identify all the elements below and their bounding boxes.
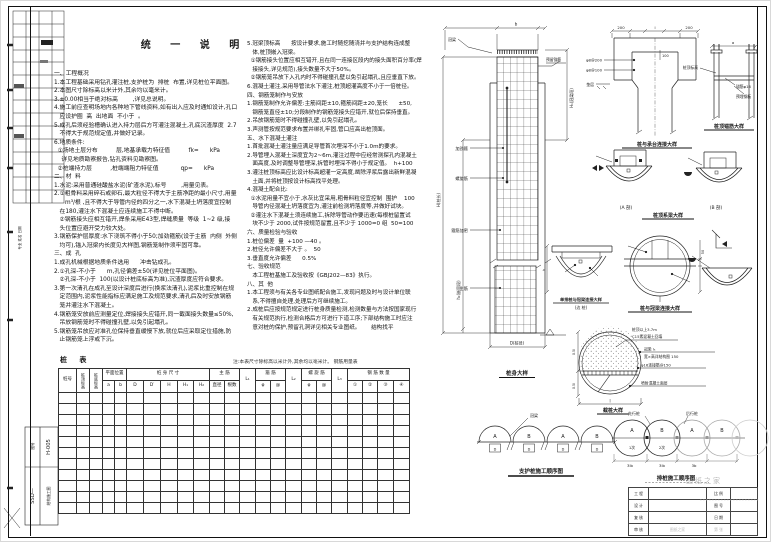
note-line: 八、其 他 bbox=[247, 281, 445, 290]
pile-table-cell bbox=[59, 503, 77, 514]
pile-table-cell bbox=[77, 481, 90, 492]
pile-table-cell bbox=[90, 415, 103, 426]
pile-table-cell bbox=[210, 393, 225, 404]
pile-table-cell bbox=[240, 448, 256, 459]
pile-table-cell bbox=[59, 448, 77, 459]
pile-table-cell bbox=[127, 459, 144, 470]
pile-table-cell bbox=[317, 492, 332, 503]
pile-table-empty-row bbox=[59, 426, 410, 437]
note-line: 4.施工前应查明场地内各种地下管线资料,如有出入应及时通知设计,孔口 bbox=[54, 104, 268, 113]
note-line: 七、验收规范 bbox=[247, 263, 445, 272]
pile-table-empty-row bbox=[59, 437, 410, 448]
pile-table-cell bbox=[103, 470, 115, 481]
col-bar1: ① bbox=[348, 381, 363, 393]
pile-table-cell bbox=[90, 404, 103, 415]
pile-table-cell bbox=[161, 470, 178, 481]
pile-table-cell bbox=[194, 503, 210, 514]
pile-table-cell bbox=[348, 448, 363, 459]
pile-table-cell bbox=[225, 415, 240, 426]
pile-table-cell bbox=[302, 492, 317, 503]
pile-table-cell bbox=[302, 459, 317, 470]
col-L2: L₂ bbox=[286, 369, 302, 393]
pile-table-cell bbox=[302, 426, 317, 437]
note-line: 六、质量检验与验收 bbox=[247, 229, 445, 238]
drawing-sheet: 统 一 说 明 一、工程概况1.本工程基础采用钻孔灌注桩,支护桩为 排桩 布置,… bbox=[0, 0, 771, 542]
pile-table-cell bbox=[240, 437, 256, 448]
col-H: H bbox=[161, 381, 178, 393]
pile-table: 桩号 桩顶标高 桩底标高 平面位置 桩 身 尺 寸 主 筋 L₁ 箍 筋 L₂ … bbox=[58, 368, 409, 514]
note-line: 四、钢筋笼制作与安放 bbox=[247, 92, 445, 101]
pile-table-cell bbox=[394, 492, 410, 503]
pile-table-cell bbox=[90, 393, 103, 404]
pile-table-cell bbox=[286, 481, 302, 492]
pile-table-cell bbox=[240, 404, 256, 415]
pile-table-cell bbox=[178, 492, 194, 503]
pile-table-cell bbox=[332, 426, 348, 437]
pile-table-cell bbox=[378, 459, 394, 470]
pile-table-cell bbox=[103, 492, 115, 503]
pile-table-cell bbox=[144, 481, 161, 492]
tb-approve-label: 审 核 bbox=[629, 524, 649, 536]
note-line: 4.钢筋笼安放前应测量定位,焊接接头应错开,同一截面接头数量≤50%, bbox=[54, 311, 268, 320]
note-line: 1.桩位偏差 量 +100 —40 。 bbox=[247, 238, 445, 247]
pile-table-cell bbox=[271, 426, 286, 437]
pile-table-cell bbox=[256, 437, 271, 448]
note-line: 笼并灌注水下混凝土。 bbox=[54, 302, 268, 311]
note-line: 2.成桩后应按规范规定进行桩身质量检测,检测数量与方法按国家现行 bbox=[247, 306, 445, 315]
pile-table-cell bbox=[194, 481, 210, 492]
tb-sheetno-value bbox=[731, 524, 758, 536]
pile-table-cell bbox=[127, 404, 144, 415]
note-line: 在180,灌注水下混凝土应连续施工不得中断。 bbox=[54, 208, 268, 217]
pile-table-cell bbox=[256, 492, 271, 503]
tb-watermark-cell: 图纸之家 bbox=[649, 524, 707, 536]
pile-table-cell bbox=[194, 470, 210, 481]
pile-table-cell bbox=[378, 404, 394, 415]
pile-table-cell bbox=[256, 404, 271, 415]
note-line: 3.垂直度允许偏差 0.5% bbox=[247, 255, 445, 264]
pile-table-cell bbox=[286, 492, 302, 503]
pile-table-cell bbox=[317, 459, 332, 470]
pile-table-note: 注:本表尺寸除标高以米计外,其余均以毫米计。 钢筋用量表 bbox=[233, 358, 358, 365]
pile-table-cell bbox=[127, 492, 144, 503]
note-line: 三、成 孔 bbox=[54, 250, 268, 259]
note-line: 2.吊放钢筋笼时不得碰撞孔壁,以免引起塌孔。 bbox=[247, 117, 445, 126]
col-spiral-dia: φ bbox=[302, 381, 317, 393]
pile-table-cell bbox=[194, 459, 210, 470]
pile-table-cell bbox=[77, 459, 90, 470]
note-line: 1.成孔机械根据地质条件选用 冲击钻成孔。 bbox=[54, 259, 268, 268]
note-line: 3.第一次清孔在成孔至设计深度后进行(换浆法清孔),泥浆比重控制在规 bbox=[54, 285, 268, 294]
col-spiral-spacing: @ bbox=[317, 381, 332, 393]
pile-table-cell bbox=[394, 437, 410, 448]
pile-table-cell bbox=[90, 448, 103, 459]
pile-table-cell bbox=[210, 503, 225, 514]
pile-table-cell bbox=[256, 415, 271, 426]
pile-table-cell bbox=[394, 426, 410, 437]
pile-table-cell bbox=[115, 492, 127, 503]
pile-table-cell bbox=[363, 415, 378, 426]
pile-table-cell bbox=[144, 415, 161, 426]
pile-table-cell bbox=[363, 470, 378, 481]
group-bar-quantity: 钢 筋 数 量 bbox=[348, 369, 410, 381]
note-line: 头位置应避开受力较大处。 bbox=[54, 225, 268, 234]
pile-table-cell bbox=[127, 503, 144, 514]
pile-table-cell bbox=[378, 393, 394, 404]
pile-table-cell bbox=[210, 437, 225, 448]
pile-table-header-row2: a b D D′ H H₁ H₂ 直径 根数 φ @ φ @ ① ② ③ ④ bbox=[59, 381, 410, 393]
pile-table-cell bbox=[77, 448, 90, 459]
pile-table-cell bbox=[332, 492, 348, 503]
note-line: ②钢筋接头应相互错开,焊条采用E43型,焊缝质量 等级 1~2 级,接 bbox=[54, 216, 268, 225]
pile-table-empty-row bbox=[59, 470, 410, 481]
pile-table-cell bbox=[161, 492, 178, 503]
note-line: 吊放钢筋笼时不得碰撞孔壁,以免引起塌孔。 bbox=[54, 319, 268, 328]
pile-table-cell bbox=[378, 415, 394, 426]
pile-table-cell bbox=[271, 459, 286, 470]
pile-table-title: 桩 表 bbox=[60, 355, 91, 365]
pile-table-cell bbox=[348, 437, 363, 448]
pile-table-cell bbox=[256, 426, 271, 437]
pile-table-cell bbox=[286, 426, 302, 437]
pile-table-cell bbox=[317, 404, 332, 415]
pile-table-cell bbox=[302, 470, 317, 481]
pile-table-cell bbox=[161, 437, 178, 448]
pile-table-cell bbox=[225, 393, 240, 404]
frame-right-inner-line bbox=[757, 6, 758, 536]
tb-drawno-label: 图 号 bbox=[707, 500, 731, 512]
col-bar4: ④ bbox=[394, 381, 410, 393]
group-spiral-bars: 螺 旋 筋 bbox=[302, 369, 332, 381]
pile-table-cell bbox=[210, 426, 225, 437]
pile-table-cell bbox=[178, 448, 194, 459]
pile-table-empty-row bbox=[59, 393, 410, 404]
note-line: 2.本图尺寸除标高以米计外,其余均以毫米计。 bbox=[54, 87, 268, 96]
pile-table-cell bbox=[77, 492, 90, 503]
pile-table-cell bbox=[317, 437, 332, 448]
note-line: 6.地质条件: bbox=[54, 139, 268, 148]
note-line: 详见地质勘察报告,钻孔资料见勘察图。 bbox=[54, 156, 268, 165]
pile-table-cell bbox=[194, 448, 210, 459]
pile-table-empty-row bbox=[59, 503, 410, 514]
pile-table-cell bbox=[225, 448, 240, 459]
pile-table-cell bbox=[194, 437, 210, 448]
pile-table-cell bbox=[90, 492, 103, 503]
note-line: 定范围内,泥浆性能指标应满足施工及规范要求,清孔后及时安放钢筋 bbox=[54, 293, 268, 302]
pile-table-cell bbox=[77, 470, 90, 481]
pile-table-cell bbox=[144, 448, 161, 459]
tb-date-label: 日 期 bbox=[707, 512, 731, 524]
pile-table-cell bbox=[103, 481, 115, 492]
pile-table-cell bbox=[348, 481, 363, 492]
col-bar2: ② bbox=[363, 381, 378, 393]
note-line: ②桩端持力层 ,桩端端阻力特征值 qp= kPa bbox=[54, 165, 268, 174]
pile-table-cell bbox=[256, 448, 271, 459]
pile-table-cell bbox=[378, 481, 394, 492]
note-line: 3.灌注桩顶标高应比设计标高超灌一定高度,凿除浮浆后露出新鲜混凝 bbox=[247, 169, 445, 178]
pile-table-cell bbox=[194, 492, 210, 503]
pile-table-cell bbox=[286, 404, 302, 415]
note-line: 2.桩径允许偏差不大于 。 50 bbox=[247, 246, 445, 255]
pile-table-cell bbox=[332, 404, 348, 415]
pile-table-cell bbox=[271, 393, 286, 404]
pile-table-cell bbox=[394, 404, 410, 415]
pile-table-cell bbox=[348, 415, 363, 426]
frame-left-inner-line bbox=[30, 6, 31, 536]
note-line: 有关规范执行,检测合格后方可进行下道工序;下部结构施工时应注 bbox=[247, 315, 445, 324]
pile-table-cell bbox=[302, 448, 317, 459]
note-line: 意对桩的保护,预留孔洞详见相关专业图纸。 结构找平 bbox=[247, 324, 445, 333]
note-line: 止钢筋笼上浮或下沉。 bbox=[54, 336, 268, 345]
col-D: D bbox=[127, 381, 144, 393]
note-line: 五、水下混凝土灌注 bbox=[247, 135, 445, 144]
pile-table-cell bbox=[210, 481, 225, 492]
note-line: 土面,并将桩顶按设计标高找平处理。 bbox=[247, 178, 445, 187]
pile-table-cell bbox=[394, 503, 410, 514]
pile-table-cell bbox=[161, 415, 178, 426]
pile-table-cell bbox=[144, 459, 161, 470]
pile-table-cell bbox=[90, 437, 103, 448]
pile-table-cell bbox=[240, 503, 256, 514]
pile-table-cell bbox=[302, 404, 317, 415]
pile-table-cell bbox=[363, 448, 378, 459]
pile-table-cell bbox=[332, 448, 348, 459]
pile-table-cell bbox=[225, 503, 240, 514]
pile-table-cell bbox=[77, 503, 90, 514]
pile-table-cell bbox=[144, 404, 161, 415]
note-line: 3.声测管按规范要求布置并绑扎牢固,管口应高出桩顶面。 bbox=[247, 126, 445, 135]
note-line: 1.本工程须与有关各专业图纸配合施工,发现问题及时与设计单位联 bbox=[247, 289, 445, 298]
pile-table-cell bbox=[286, 415, 302, 426]
pile-table-cell bbox=[302, 393, 317, 404]
pile-table-cell bbox=[161, 426, 178, 437]
pile-table-cell bbox=[302, 481, 317, 492]
note-line: 钢筋笼直径±10;分段制作的钢筋笼接头应错开,就位后保持垂直。 bbox=[247, 109, 445, 118]
pile-table-empty-row bbox=[59, 481, 410, 492]
note-line: 5.钢筋笼吊放应对准孔位保持垂直缓慢下放,就位后应采取定位措施,防 bbox=[54, 328, 268, 337]
pile-table-cell bbox=[115, 426, 127, 437]
tb-check-label: 复 核 bbox=[629, 512, 649, 524]
pile-table-cell bbox=[127, 393, 144, 404]
note-line: 1.本工程基础采用钻孔灌注桩,支护桩为 排桩 布置,详见桩位平面图。 bbox=[54, 79, 268, 88]
pile-table-cell bbox=[161, 481, 178, 492]
pile-table-cell bbox=[59, 437, 77, 448]
group-main-bars: 主 筋 bbox=[210, 369, 240, 381]
note-line: 导管内径混凝土坍落度宜为,灌注前检测坍落度等,并做好试块。 bbox=[247, 203, 445, 212]
pile-table-cell bbox=[77, 404, 90, 415]
pile-table-cell bbox=[240, 470, 256, 481]
pile-table-cell bbox=[378, 426, 394, 437]
tb-scale-value bbox=[731, 488, 758, 500]
pile-table-cell bbox=[332, 481, 348, 492]
note-line: ①钢筋接头位置应相互错开,且在同一连接区段内的接头面积百分率(焊 bbox=[247, 57, 445, 66]
pile-table-cell bbox=[194, 404, 210, 415]
pile-table-cell bbox=[348, 426, 363, 437]
pile-table-cell bbox=[378, 492, 394, 503]
pile-table-cell bbox=[394, 481, 410, 492]
col-bar3: ③ bbox=[378, 381, 394, 393]
pile-table-cell bbox=[394, 415, 410, 426]
pile-table-cell bbox=[178, 470, 194, 481]
pile-table-cell bbox=[271, 404, 286, 415]
pile-table-cell bbox=[77, 415, 90, 426]
col-stirrup-dia: φ bbox=[256, 381, 271, 393]
pile-table-cell bbox=[302, 503, 317, 514]
pile-table-cell bbox=[240, 492, 256, 503]
note-line: ②孔深-不小于 100(以设计桩底标高为准),沉渣厚度应符合要求。 bbox=[54, 276, 268, 285]
col-H2: H₂ bbox=[194, 381, 210, 393]
pile-table-cell bbox=[77, 393, 90, 404]
pile-table-cell bbox=[363, 503, 378, 514]
pile-table-cell bbox=[115, 503, 127, 514]
pile-table-cell bbox=[144, 503, 161, 514]
pile-table-empty-row bbox=[59, 415, 410, 426]
pile-table-cell bbox=[144, 426, 161, 437]
pile-table-cell bbox=[127, 481, 144, 492]
pile-table-cell bbox=[317, 448, 332, 459]
pile-table-cell bbox=[317, 393, 332, 404]
pile-table-cell bbox=[178, 426, 194, 437]
pile-table-cell bbox=[225, 437, 240, 448]
pile-table-cell bbox=[256, 481, 271, 492]
pile-table-cell bbox=[210, 415, 225, 426]
pile-table-empty-row bbox=[59, 448, 410, 459]
pile-table-cell bbox=[161, 503, 178, 514]
pile-table-header-row1: 桩号 桩顶标高 桩底标高 平面位置 桩 身 尺 寸 主 筋 L₁ 箍 筋 L₂ … bbox=[59, 369, 410, 381]
note-line: 均可),锚入冠梁内长度见大样图,钢筋笼制作须牢固可靠。 bbox=[54, 242, 268, 251]
pile-table-cell bbox=[317, 481, 332, 492]
pile-table-cell bbox=[127, 437, 144, 448]
pile-table-cell bbox=[225, 404, 240, 415]
note-line: 体,桩顶嵌入冠梁。 bbox=[247, 49, 445, 58]
note-line: 1.水泥:采用普通硅酸盐水泥(矿渣水泥),标号 ,用量见表。 bbox=[54, 182, 268, 191]
pile-table-cell bbox=[363, 437, 378, 448]
pile-table-cell bbox=[240, 481, 256, 492]
general-notes-right-column: 5.冠梁顶标高 按设计要求,施工时随挖随浇并与支护结构连成整 体,桩顶嵌入冠梁。… bbox=[247, 40, 445, 340]
col-H1: H₁ bbox=[178, 381, 194, 393]
pile-table-cell bbox=[332, 459, 348, 470]
pile-table-cell bbox=[332, 503, 348, 514]
pile-table-cell bbox=[394, 448, 410, 459]
pile-table-cell bbox=[225, 481, 240, 492]
pile-table-cell bbox=[194, 426, 210, 437]
pile-table-cell bbox=[302, 437, 317, 448]
pile-table-cell bbox=[378, 437, 394, 448]
note-line: 1.钢筋笼制作允许偏差:主筋间距±10,箍筋间距±20,笼长 ±50, bbox=[247, 100, 445, 109]
pile-table-cell bbox=[225, 459, 240, 470]
tb-scale-label: 比 例 bbox=[707, 488, 731, 500]
note-line: 接接头,详见规范),接头数量不大于50%。 bbox=[247, 66, 445, 75]
note-line: 4.混凝土配合比: bbox=[247, 186, 445, 195]
pile-table-cell bbox=[103, 459, 115, 470]
pile-table-cell bbox=[59, 459, 77, 470]
pile-table-cell bbox=[103, 404, 115, 415]
tb-sheetno-label: 第 张 bbox=[707, 524, 731, 536]
pile-table-cell bbox=[286, 393, 302, 404]
pile-table-cell bbox=[363, 393, 378, 404]
tb-check-value bbox=[649, 512, 707, 524]
pile-table-cell bbox=[103, 503, 115, 514]
pile-table-cell bbox=[286, 448, 302, 459]
note-line: 应设护圈 高 出地面 不小于 。 bbox=[54, 113, 268, 122]
col-pile-no: 桩号 bbox=[59, 369, 77, 393]
pile-table-cell bbox=[378, 503, 394, 514]
col-diameter: 直径 bbox=[210, 381, 225, 393]
group-pile-dimensions: 桩 身 尺 寸 bbox=[127, 369, 210, 381]
pile-table-cell bbox=[115, 459, 127, 470]
tb-design-value bbox=[649, 500, 707, 512]
pile-table-cell bbox=[127, 415, 144, 426]
pile-table-cell bbox=[144, 393, 161, 404]
pile-table-cell bbox=[317, 503, 332, 514]
pile-table-cell bbox=[378, 470, 394, 481]
note-line: 5.冠梁顶标高 按设计要求,施工时随挖随浇并与支护结构连成整 bbox=[247, 40, 445, 49]
note-line: 一、工程概况 bbox=[54, 70, 268, 79]
col-a: a bbox=[103, 381, 115, 393]
pile-table-cell bbox=[210, 492, 225, 503]
pile-table-cell bbox=[90, 426, 103, 437]
col-L3: L₃ bbox=[332, 369, 348, 393]
pile-table-cell bbox=[178, 481, 194, 492]
col-Dp: D′ bbox=[144, 381, 161, 393]
pile-table-cell bbox=[317, 426, 332, 437]
pile-table-cell bbox=[286, 470, 302, 481]
pile-table-cell bbox=[225, 470, 240, 481]
pile-table-cell bbox=[144, 492, 161, 503]
pile-table-cell bbox=[240, 426, 256, 437]
note-line: 本工程桩基施工及验收按《GBJ202—83》执行。 bbox=[247, 272, 445, 281]
note-line: 系,不得擅自处理,处理后方可继续施工。 bbox=[247, 298, 445, 307]
note-line: 2.①孔深-不小于 m,孔径偏差±50(详见桩位平面图)。 bbox=[54, 268, 268, 277]
pile-table-cell bbox=[161, 459, 178, 470]
tb-date-value bbox=[731, 512, 758, 524]
pile-table-cell bbox=[240, 393, 256, 404]
pile-table-cell bbox=[271, 415, 286, 426]
pile-table-cell bbox=[59, 393, 77, 404]
pile-table-empty-row bbox=[59, 404, 410, 415]
pile-table-cell bbox=[317, 415, 332, 426]
note-line: ①场地土层分布 层,地基承载力特征值 fk= kPa bbox=[54, 147, 268, 156]
pile-table-cell bbox=[332, 470, 348, 481]
col-b: b bbox=[115, 381, 127, 393]
pile-table-cell bbox=[161, 404, 178, 415]
pile-table-cell bbox=[178, 459, 194, 470]
pile-table-cell bbox=[332, 437, 348, 448]
pile-table-cell bbox=[115, 481, 127, 492]
pile-table-cell bbox=[286, 437, 302, 448]
pile-table-cell bbox=[286, 459, 302, 470]
watermark-text: 图纸之家 bbox=[686, 476, 722, 486]
note-line: ②灌注水下混凝土须连续施工,拆除导管动作要迅速(每根桩留置试 bbox=[247, 212, 445, 221]
pile-table-cell bbox=[256, 459, 271, 470]
pile-table-cell bbox=[302, 415, 317, 426]
pile-table-cell bbox=[90, 481, 103, 492]
pile-table-cell bbox=[332, 393, 348, 404]
note-line: ②钢筋笼吊放下入孔内时不得碰撞孔壁以免引起塌孔,且应垂直下放。 bbox=[247, 74, 445, 83]
pile-table-cell bbox=[225, 426, 240, 437]
pile-table-cell bbox=[59, 426, 77, 437]
pile-table-cell bbox=[178, 437, 194, 448]
note-line: 块不少于 2000,试件按规范留置,且不少于 1000=0 组 50=100 bbox=[247, 220, 445, 229]
pile-table-cell bbox=[271, 492, 286, 503]
pile-table-cell bbox=[256, 393, 271, 404]
pile-table-cell bbox=[115, 437, 127, 448]
note-line: 5.成孔后须经验槽确认进入持力层后方可灌注混凝土,孔底沉渣厚度 2.7 bbox=[54, 122, 268, 131]
pile-table-cell bbox=[363, 404, 378, 415]
pile-table-cell bbox=[77, 437, 90, 448]
group-plan-position: 平面位置 bbox=[103, 369, 127, 381]
pile-table-empty-row bbox=[59, 492, 410, 503]
